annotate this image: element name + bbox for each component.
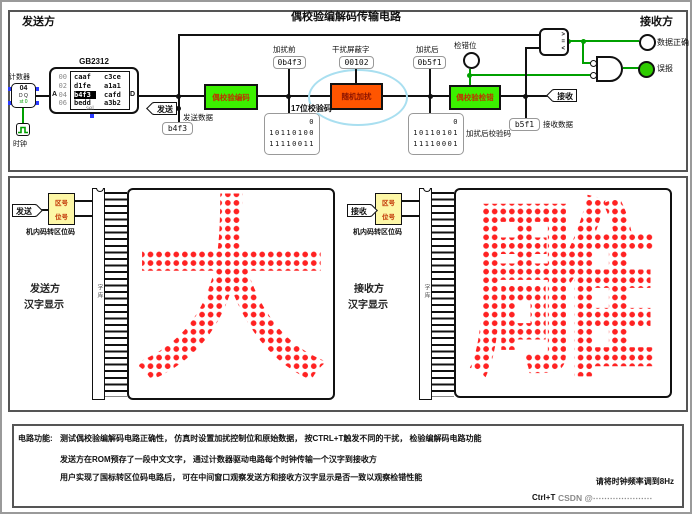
chip-label: 字库 bbox=[93, 284, 104, 300]
bit-code-pin: 位号 bbox=[382, 211, 395, 221]
page-title: 偶校验编解码传输电路 bbox=[2, 13, 690, 22]
table-row: d1fea1a1 bbox=[74, 82, 126, 91]
check17-label: 17位校验码 bbox=[291, 104, 332, 113]
table-row: b4f3cafd bbox=[74, 91, 126, 100]
probe-before-label: 加扰前 bbox=[273, 45, 296, 54]
wire bbox=[525, 47, 527, 97]
code-converter-box[interactable]: 区号 位号 bbox=[375, 193, 402, 225]
receive-terminal[interactable]: 接收 bbox=[553, 89, 577, 102]
comparator-pins: >=< bbox=[561, 32, 565, 53]
rom-pin-a: A bbox=[52, 90, 57, 99]
rom-pin-d: D bbox=[130, 90, 135, 99]
parity-encoder-box[interactable]: 偶校验编码 bbox=[204, 84, 258, 110]
chip-label: 字库 bbox=[420, 284, 431, 300]
scrambler-box[interactable]: 随机加扰 bbox=[330, 83, 383, 110]
rom-selected-cell: b4f3 bbox=[74, 91, 96, 100]
table-row: caafc3ce bbox=[74, 73, 126, 82]
receiver-dot-matrix[interactable]: 雕 bbox=[454, 188, 672, 398]
converter-label: 机内码转区位码 bbox=[26, 228, 75, 237]
receive-data-probe[interactable]: b5f1 bbox=[509, 118, 540, 131]
selection-handle bbox=[90, 114, 94, 118]
wire bbox=[429, 69, 431, 95]
zone-code-pin: 区号 bbox=[382, 197, 395, 207]
wire bbox=[178, 34, 539, 36]
wire bbox=[402, 200, 419, 202]
shortcut-note: Ctrl+T bbox=[532, 493, 555, 503]
send-data-probe[interactable]: b4f3 bbox=[162, 122, 193, 135]
csdn-watermark: CSDN @⋯⋯⋯⋯⋯⋯⋯ bbox=[558, 493, 652, 504]
mask-word-label: 干扰屏蔽字 bbox=[332, 45, 370, 54]
wire-green bbox=[469, 74, 593, 76]
comparator-component[interactable]: >=< bbox=[539, 28, 569, 56]
send-terminal[interactable]: 发送 bbox=[153, 102, 177, 115]
receiver-display-title: 接收方 bbox=[354, 280, 384, 295]
false-alarm-label: 误报 bbox=[657, 64, 673, 73]
pin-ladder bbox=[432, 192, 454, 397]
receiver-display-subtitle: 汉字显示 bbox=[348, 296, 388, 311]
converter-label: 机内码转区位码 bbox=[353, 228, 402, 237]
function-line-1: 测试偶校验编解码电路正确性， 仿真时设置加扰控制位和原始数据， 按CTRL+T触… bbox=[60, 434, 482, 444]
receive-terminal-display[interactable]: 接收 bbox=[347, 204, 371, 217]
receiver-character: 雕 bbox=[456, 190, 670, 396]
font-rom-chip[interactable]: 字库 bbox=[92, 188, 105, 400]
counter-label: 计数器 bbox=[9, 73, 30, 82]
send-terminal-display[interactable]: 发送 bbox=[12, 204, 36, 217]
probe-before-value[interactable]: 0b4f3 bbox=[273, 56, 306, 69]
wire bbox=[402, 215, 419, 217]
code-converter-box[interactable]: 区号 位号 bbox=[48, 193, 75, 225]
sender-character: 大 bbox=[129, 190, 333, 398]
data-correct-indicator[interactable] bbox=[639, 34, 656, 51]
wire-green bbox=[582, 40, 584, 64]
scrambled-code-display: 01011010111110001 bbox=[408, 113, 464, 155]
wire bbox=[75, 200, 92, 202]
wire bbox=[429, 97, 431, 113]
data-correct-label: 数据正确 bbox=[657, 38, 689, 47]
inverter-bubble bbox=[590, 72, 597, 79]
counter-component[interactable]: 04 D Q st 0 bbox=[11, 83, 36, 108]
wire-green bbox=[623, 67, 639, 69]
and-gate[interactable] bbox=[596, 56, 623, 82]
wire bbox=[36, 95, 49, 97]
wire bbox=[525, 47, 539, 49]
rom-data-table: caafc3ce d1fea1a1 b4f3cafd bedda3b2 bbox=[70, 71, 130, 110]
clock-component[interactable] bbox=[16, 123, 30, 136]
probe-after-value[interactable]: 0b5f1 bbox=[413, 56, 446, 69]
clock-waveform-icon bbox=[18, 126, 28, 134]
errorbit-label: 检错位 bbox=[454, 41, 477, 50]
wire bbox=[178, 110, 180, 122]
table-row: bedda3b2 bbox=[74, 99, 126, 108]
false-alarm-indicator[interactable] bbox=[638, 61, 655, 78]
receive-data-label: 接收数据 bbox=[543, 120, 573, 129]
scrambled-code-label: 加扰后校验码 bbox=[466, 129, 511, 138]
font-rom-chip[interactable]: 字库 bbox=[419, 188, 432, 400]
parity-checker-box[interactable]: 偶校验检错 bbox=[449, 85, 501, 110]
rom-title: GB2312 bbox=[49, 57, 139, 66]
function-line-2: 发送方在ROM预存了一段中文文字， 通过计数器驱动电路每个时钟传输一个汉字到接收… bbox=[60, 455, 377, 465]
send-data-label: 发送数据 bbox=[183, 113, 213, 122]
counter-value: 04 bbox=[12, 85, 35, 93]
receiver-title: 接收方 bbox=[640, 18, 673, 27]
junction-dot bbox=[176, 94, 181, 99]
wire bbox=[288, 69, 290, 95]
check17-display: 01011010011110011 bbox=[264, 113, 320, 155]
clock-label: 时钟 bbox=[13, 140, 27, 149]
pin-ladder bbox=[105, 192, 127, 397]
wire bbox=[75, 215, 92, 217]
clock-wire bbox=[22, 108, 24, 123]
wire bbox=[288, 97, 290, 114]
probe-after-label: 加扰后 bbox=[416, 45, 439, 54]
inverter-bubble bbox=[590, 60, 597, 67]
bit-code-pin: 位号 bbox=[55, 211, 68, 221]
counter-st-pin: st 0 bbox=[12, 99, 35, 105]
zone-code-pin: 区号 bbox=[55, 197, 68, 207]
simulation-window: 发送方 偶校验编解码传输电路 接收方 计数器 04 D Q st 0 时钟 GB… bbox=[0, 0, 692, 514]
wire bbox=[139, 95, 204, 97]
sender-dot-matrix[interactable]: 大 bbox=[127, 188, 335, 400]
function-prefix: 电路功能: bbox=[18, 434, 53, 444]
function-line-3: 用户实现了国标转区位码电路后， 可在中间窗口观察发送方和接收方汉字显示是否一致以… bbox=[60, 473, 422, 483]
errorbit-indicator[interactable] bbox=[463, 52, 480, 69]
sender-display-subtitle: 汉字显示 bbox=[24, 296, 64, 311]
sender-display-title: 发送方 bbox=[30, 280, 60, 295]
mask-word-value[interactable]: 00102 bbox=[339, 56, 374, 69]
rom-pin-sel: sel bbox=[86, 105, 94, 114]
wire bbox=[355, 69, 357, 83]
wire bbox=[525, 97, 527, 118]
clock-frequency-note: 请将时钟频率调到8Hz bbox=[596, 477, 674, 487]
wire-green bbox=[569, 40, 639, 42]
